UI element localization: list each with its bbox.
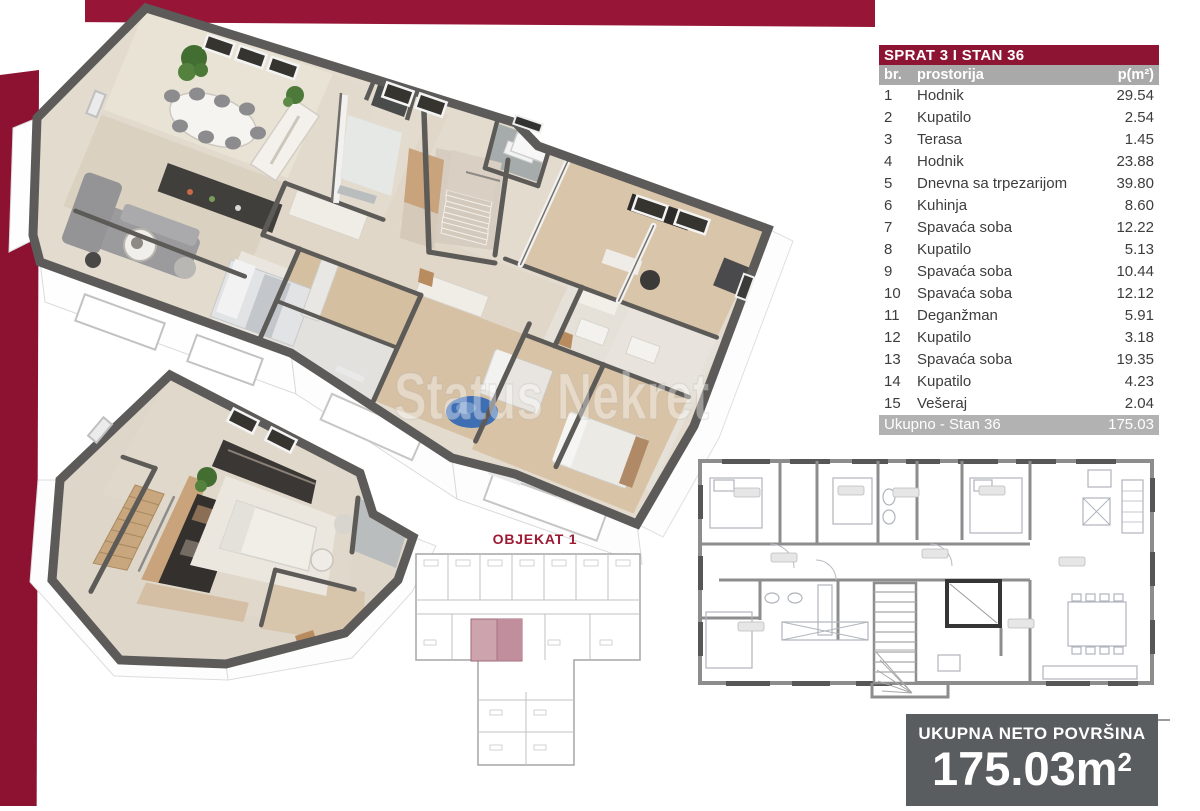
svg-text:Status Nekret: Status Nekret: [394, 359, 709, 433]
